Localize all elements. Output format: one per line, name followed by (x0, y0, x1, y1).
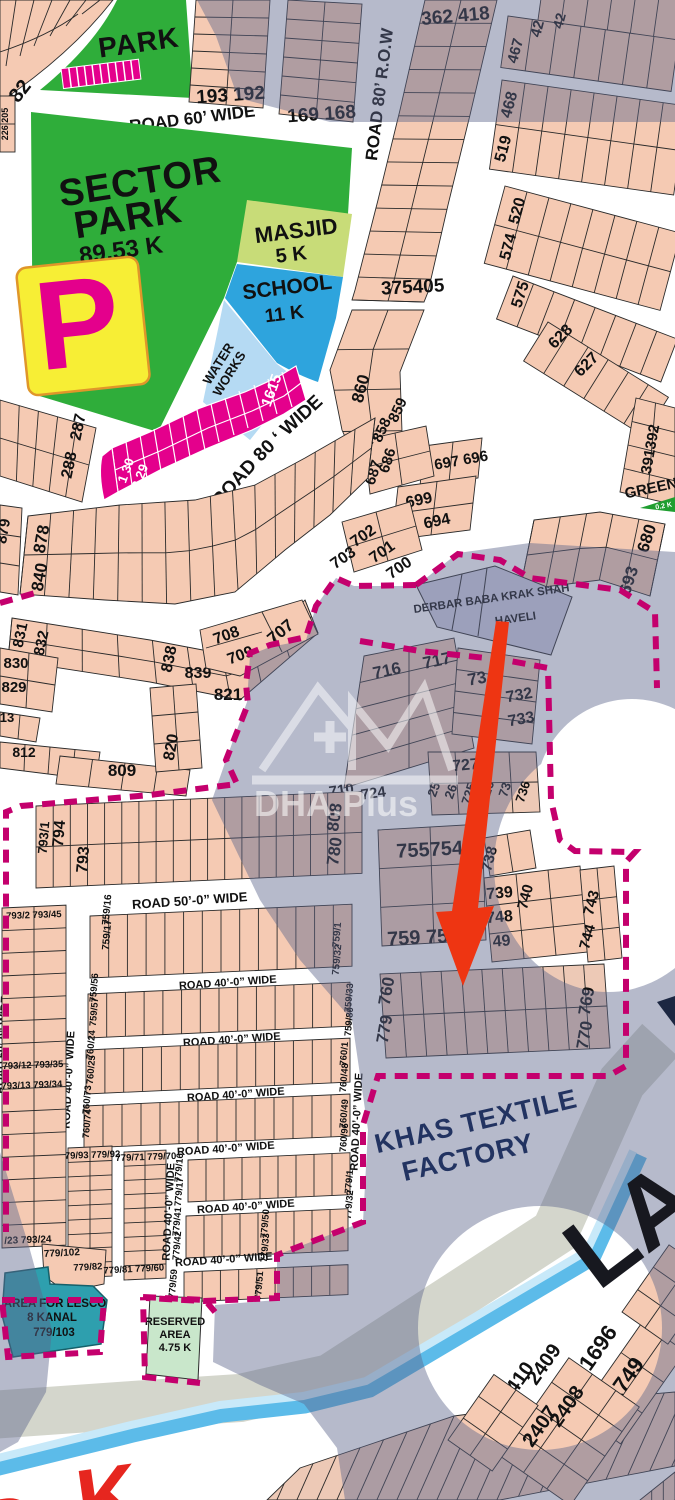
svg-text:779/102: 779/102 (44, 1247, 81, 1260)
svg-text:DHA.Plus: DHA.Plus (254, 783, 418, 824)
svg-text:5 K: 5 K (274, 242, 308, 268)
svg-text:793: 793 (74, 845, 93, 873)
svg-text:830: 830 (3, 655, 28, 672)
svg-text:809: 809 (108, 761, 136, 780)
svg-text:812: 812 (12, 744, 36, 760)
svg-text:779/71 779/70: 779/71 779/70 (115, 1151, 176, 1164)
svg-text:375405: 375405 (381, 275, 446, 299)
svg-text:13: 13 (0, 710, 14, 725)
svg-text:779/93 779/92: 779/93 779/92 (59, 1149, 120, 1162)
svg-text:793/12 793/35: 793/12 793/35 (2, 1059, 64, 1072)
svg-text:4.75 K: 4.75 K (159, 1342, 191, 1354)
svg-text:779/1: 779/1 (343, 1169, 356, 1194)
svg-text:RESERVED: RESERVED (145, 1316, 205, 1328)
svg-text:779/82: 779/82 (73, 1261, 103, 1274)
svg-text:226 205: 226 205 (0, 108, 10, 141)
svg-text:794: 794 (50, 819, 69, 847)
svg-text:793/13 793/34: 793/13 793/34 (1, 1079, 63, 1092)
svg-text:760/1: 760/1 (338, 1041, 351, 1066)
svg-text:P: P (28, 248, 126, 397)
svg-text:AREA: AREA (159, 1329, 190, 1341)
svg-text:829: 829 (1, 679, 26, 696)
svg-text:793/2 793/45: 793/2 793/45 (6, 909, 63, 922)
svg-text:821: 821 (214, 685, 242, 704)
